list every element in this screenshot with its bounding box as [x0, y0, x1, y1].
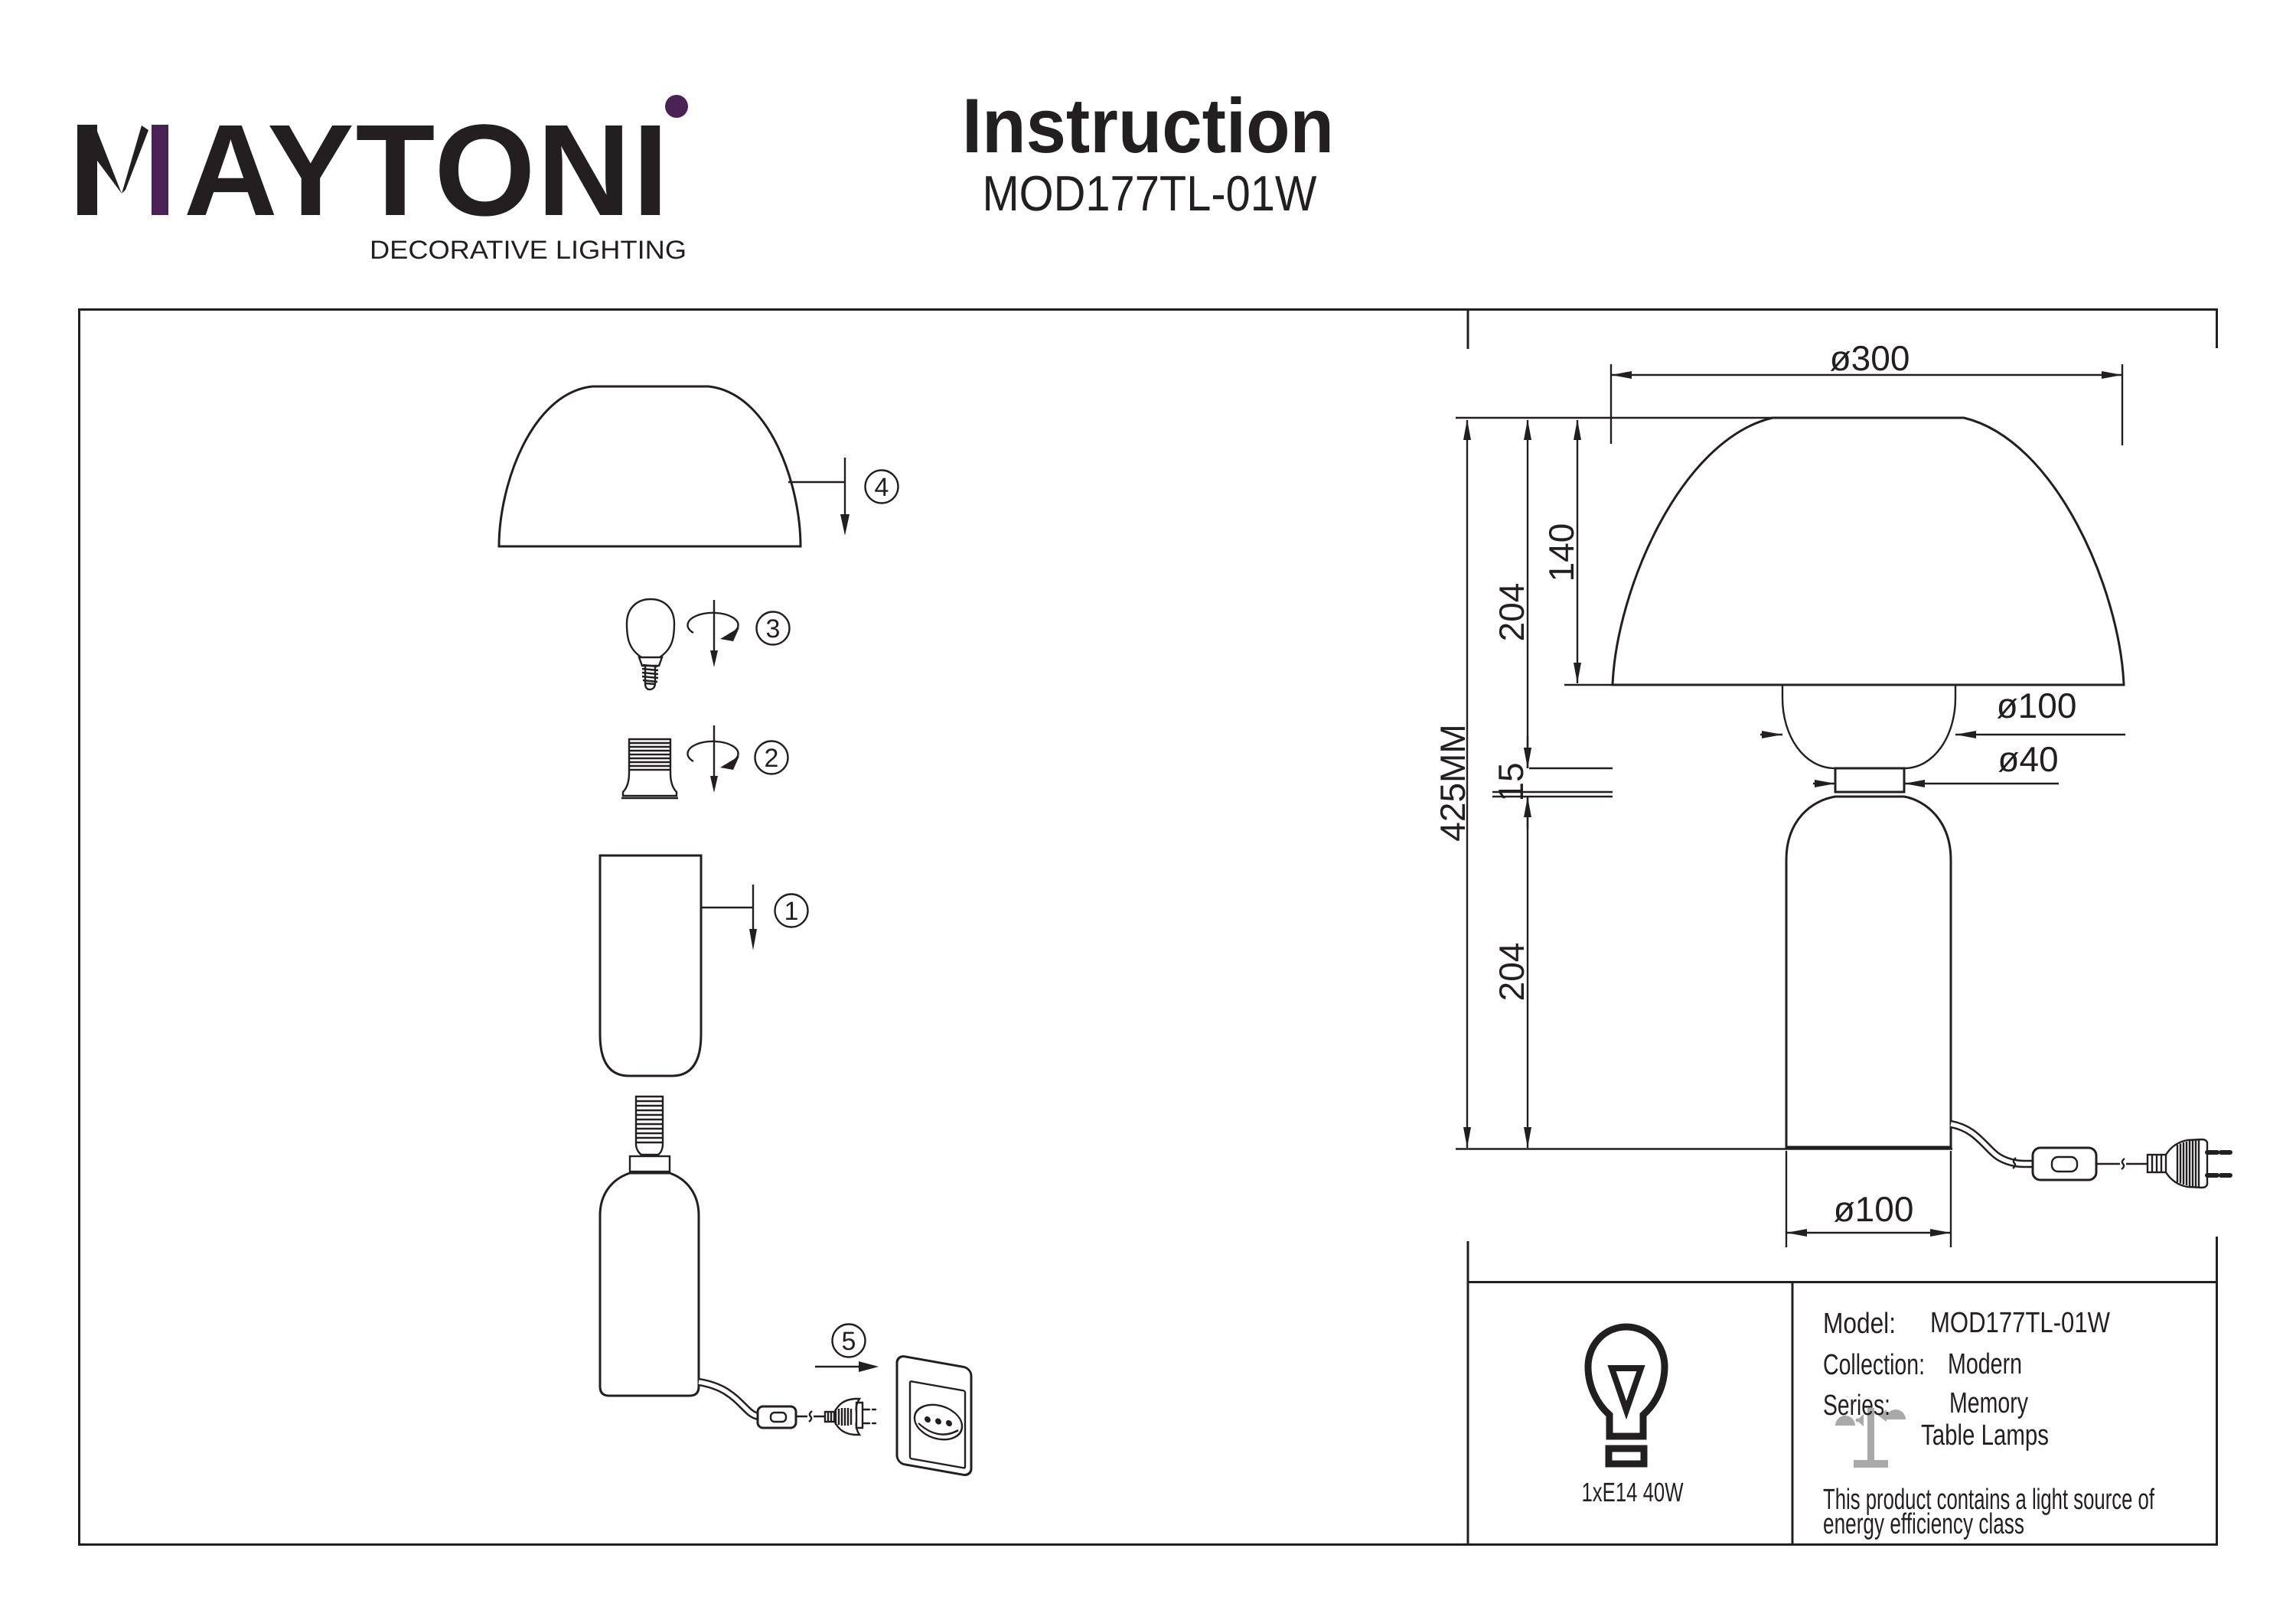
svg-text:MOD177TL-01W: MOD177TL-01W — [1930, 1307, 2110, 1339]
svg-text:energy efficiency class: energy efficiency class — [1823, 1508, 2024, 1540]
svg-text:MOD177TL-01W: MOD177TL-01W — [983, 165, 1318, 221]
svg-text:DECORATIVE LIGHTING: DECORATIVE LIGHTING — [370, 236, 687, 265]
svg-text:AYTONI: AYTONI — [184, 98, 670, 243]
svg-text:Modern: Modern — [1948, 1348, 2022, 1380]
svg-text:2: 2 — [765, 744, 779, 773]
svg-text:204: 204 — [1492, 943, 1531, 1002]
svg-text:Instruction: Instruction — [962, 83, 1334, 169]
svg-text:3: 3 — [766, 614, 781, 644]
svg-text:Model:: Model: — [1823, 1308, 1896, 1340]
svg-text:Table Lamps: Table Lamps — [1921, 1419, 2049, 1452]
svg-text:ø100: ø100 — [1997, 686, 2077, 725]
svg-text:Memory: Memory — [1949, 1387, 2028, 1419]
svg-text:Series:: Series: — [1823, 1390, 1890, 1422]
svg-text:Collection:: Collection: — [1823, 1349, 1925, 1381]
svg-text:1xE14 40W: 1xE14 40W — [1582, 1478, 1684, 1507]
svg-text:1: 1 — [784, 897, 799, 926]
svg-text:4: 4 — [875, 473, 889, 502]
svg-text:204: 204 — [1492, 583, 1531, 642]
svg-text:5: 5 — [842, 1327, 856, 1356]
svg-text:ø40: ø40 — [1998, 739, 2058, 779]
svg-text:140: 140 — [1541, 523, 1581, 582]
svg-text:15: 15 — [1491, 762, 1531, 801]
svg-text:ø100: ø100 — [1834, 1189, 1914, 1229]
svg-text:ø300: ø300 — [1830, 338, 1910, 378]
svg-text:425MM: 425MM — [1433, 724, 1473, 841]
